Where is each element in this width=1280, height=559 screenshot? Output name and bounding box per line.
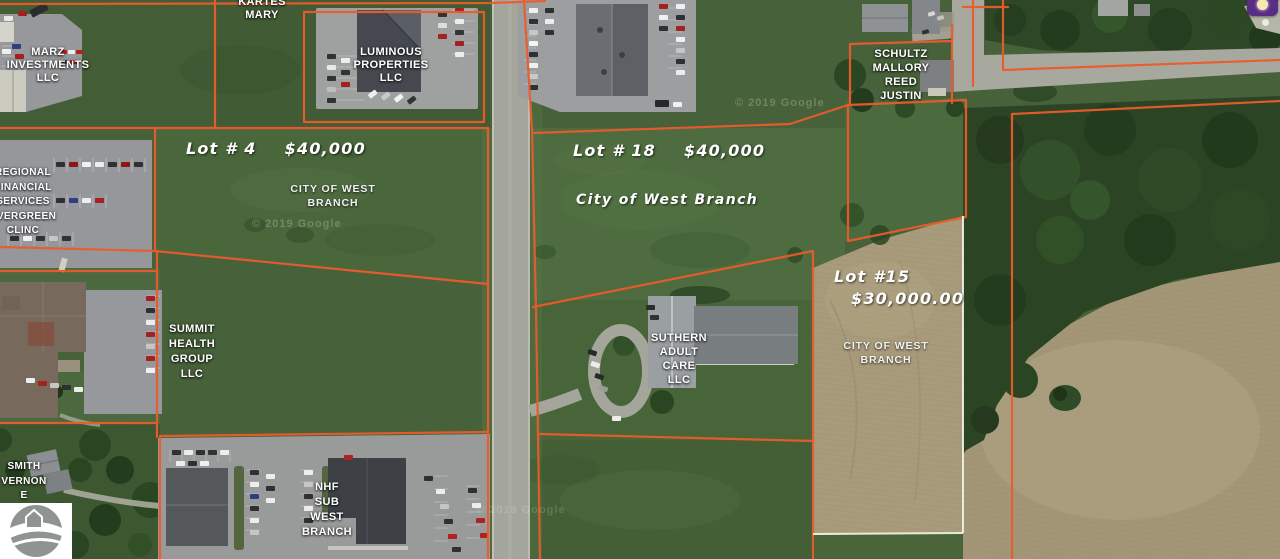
parcel-label-suthern: SUTHERN ADULT CARE LLC <box>651 331 707 387</box>
label-line: INVESTMENTS <box>7 59 90 72</box>
label-line: CITY OF WEST <box>290 183 375 197</box>
label-line: KARTES <box>238 0 286 9</box>
lot18-price-label: Lot # 18$40,000 <box>573 140 765 162</box>
label-line: LLC <box>354 72 429 85</box>
label-line: EVERGREEN <box>0 210 56 225</box>
lot15-price-label: Lot #15 $30,000.00 <box>834 266 964 310</box>
label-line: ADULT <box>651 345 707 359</box>
label-line: BRANCH <box>302 525 352 540</box>
label-line: REGIONAL <box>0 166 56 181</box>
parcel-label-schultz: SCHULTZ MALLORY REED JUSTIN <box>873 47 930 103</box>
lot15-city-label: CITY OF WEST BRANCH <box>843 340 928 367</box>
label-line: MARZ <box>7 46 90 59</box>
aerial-imagery <box>0 0 1280 559</box>
label-line: E <box>1 489 46 504</box>
label-line: City of West Branch <box>576 192 758 208</box>
label-line: REED <box>873 75 930 89</box>
label-line: SCHULTZ <box>873 47 930 61</box>
lot-price: $30,000.00 <box>834 288 964 310</box>
label-line: SUB <box>302 495 352 510</box>
google-attribution-watermark: © 2019 Google <box>476 504 566 516</box>
label-line: VERNON <box>1 475 46 490</box>
lot-price: $40,000 <box>684 141 765 160</box>
lot4-city-label: CITY OF WEST BRANCH <box>290 183 375 210</box>
label-line: FINANCIAL <box>0 181 56 196</box>
mls-watermark-logo <box>0 503 72 559</box>
parcel-label-luminous: LUMINOUS PROPERTIES LLC <box>354 46 429 85</box>
label-line: SERVICES <box>0 195 56 210</box>
label-line: LLC <box>651 373 707 387</box>
parcel-label-kartes: KARTES MARY <box>238 0 286 22</box>
parcel-label-smith: SMITH VERNON E <box>1 460 46 504</box>
label-line: BRANCH <box>843 354 928 368</box>
label-line: LLC <box>169 367 215 382</box>
label-line: JUSTIN <box>873 89 930 103</box>
label-line: LUMINOUS <box>354 46 429 59</box>
bulb-glass <box>1257 0 1268 10</box>
label-line: BRANCH <box>290 197 375 211</box>
parcel-label-nhf: NHF SUB WEST BRANCH <box>302 480 352 540</box>
parcel-label-marz: MARZ INVESTMENTS LLC <box>7 46 90 85</box>
label-line: SUTHERN <box>651 331 707 345</box>
google-attribution-watermark: © 2019 Google <box>735 97 825 109</box>
label-line: MARY <box>238 9 286 22</box>
google-attribution-watermark: © 2019 Google <box>252 218 342 230</box>
label-line: CLINC <box>0 224 56 239</box>
lot-price: $40,000 <box>285 139 366 158</box>
label-line: LLC <box>7 72 90 85</box>
label-line: GROUP <box>169 352 215 367</box>
label-line: MALLORY <box>873 61 930 75</box>
white-dot-marker <box>1262 19 1269 26</box>
lot18-city-label: City of West Branch <box>576 192 758 208</box>
lot-number: Lot #15 <box>834 267 910 286</box>
parcel-label-summit: SUMMIT HEALTH GROUP LLC <box>169 322 215 382</box>
label-line: WEST <box>302 510 352 525</box>
lot-number: Lot # 4 <box>186 139 257 158</box>
parcel-label-regional: REGIONAL FINANCIAL SERVICES EVERGREEN CL… <box>0 166 56 239</box>
label-line: CARE <box>651 359 707 373</box>
label-line: NHF <box>302 480 352 495</box>
nhf-building-west <box>166 468 228 546</box>
label-line: SUMMIT <box>169 322 215 337</box>
label-line: SMITH <box>1 460 46 475</box>
satellite-parcel-map: KARTES MARY MARZ INVESTMENTS LLC LUMINOU… <box>0 0 1280 559</box>
lot-number: Lot # 18 <box>573 141 656 160</box>
lot4-price-label: Lot # 4$40,000 <box>186 138 366 160</box>
lightbulb-overlay-icon[interactable] <box>1247 0 1278 16</box>
label-line: HEALTH <box>169 337 215 352</box>
label-line: CITY OF WEST <box>843 340 928 354</box>
label-line: PROPERTIES <box>354 59 429 72</box>
